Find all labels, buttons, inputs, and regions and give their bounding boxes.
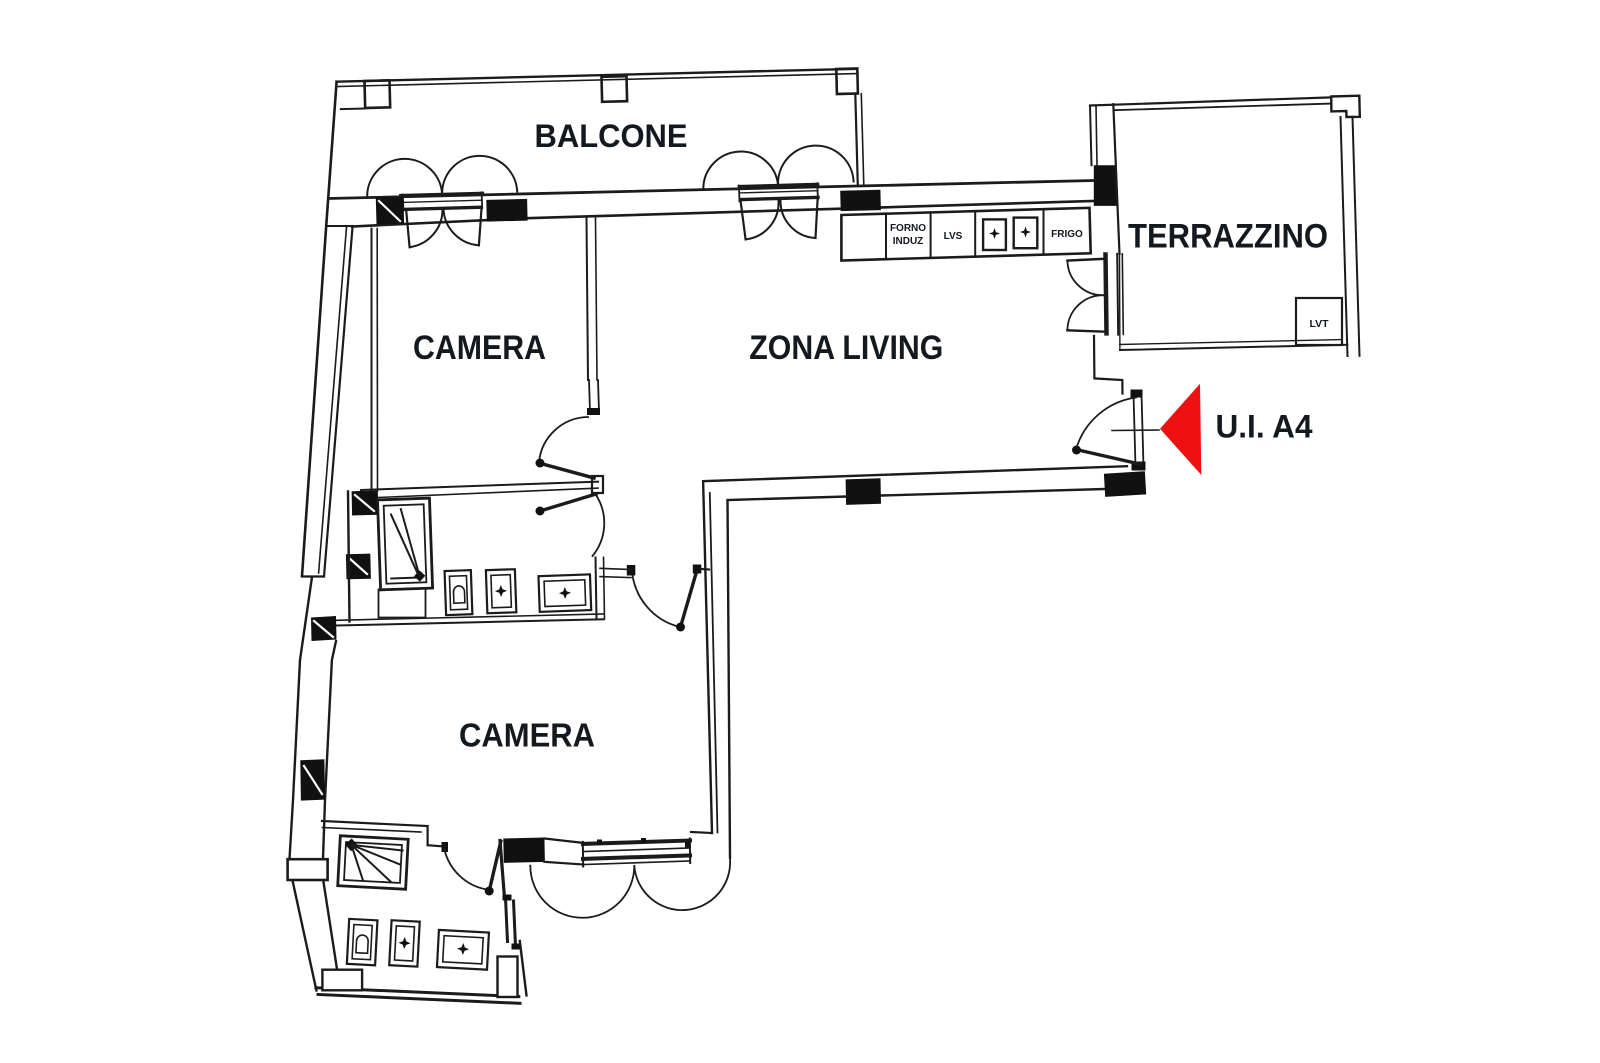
svg-text:BALCONE: BALCONE: [535, 118, 688, 154]
svg-text:CAMERA: CAMERA: [459, 716, 595, 753]
svg-text:U.I. A4: U.I. A4: [1216, 409, 1313, 445]
svg-text:LVT: LVT: [1309, 318, 1329, 330]
svg-text:LVS: LVS: [944, 231, 963, 242]
svg-text:FRIGO: FRIGO: [1051, 229, 1083, 240]
svg-text:INDUZ: INDUZ: [893, 236, 924, 247]
svg-text:FORNO: FORNO: [890, 223, 926, 234]
svg-text:ZONA LIVING: ZONA LIVING: [749, 329, 943, 367]
svg-text:TERRAZZINO: TERRAZZINO: [1128, 218, 1328, 256]
svg-text:CAMERA: CAMERA: [413, 329, 546, 367]
